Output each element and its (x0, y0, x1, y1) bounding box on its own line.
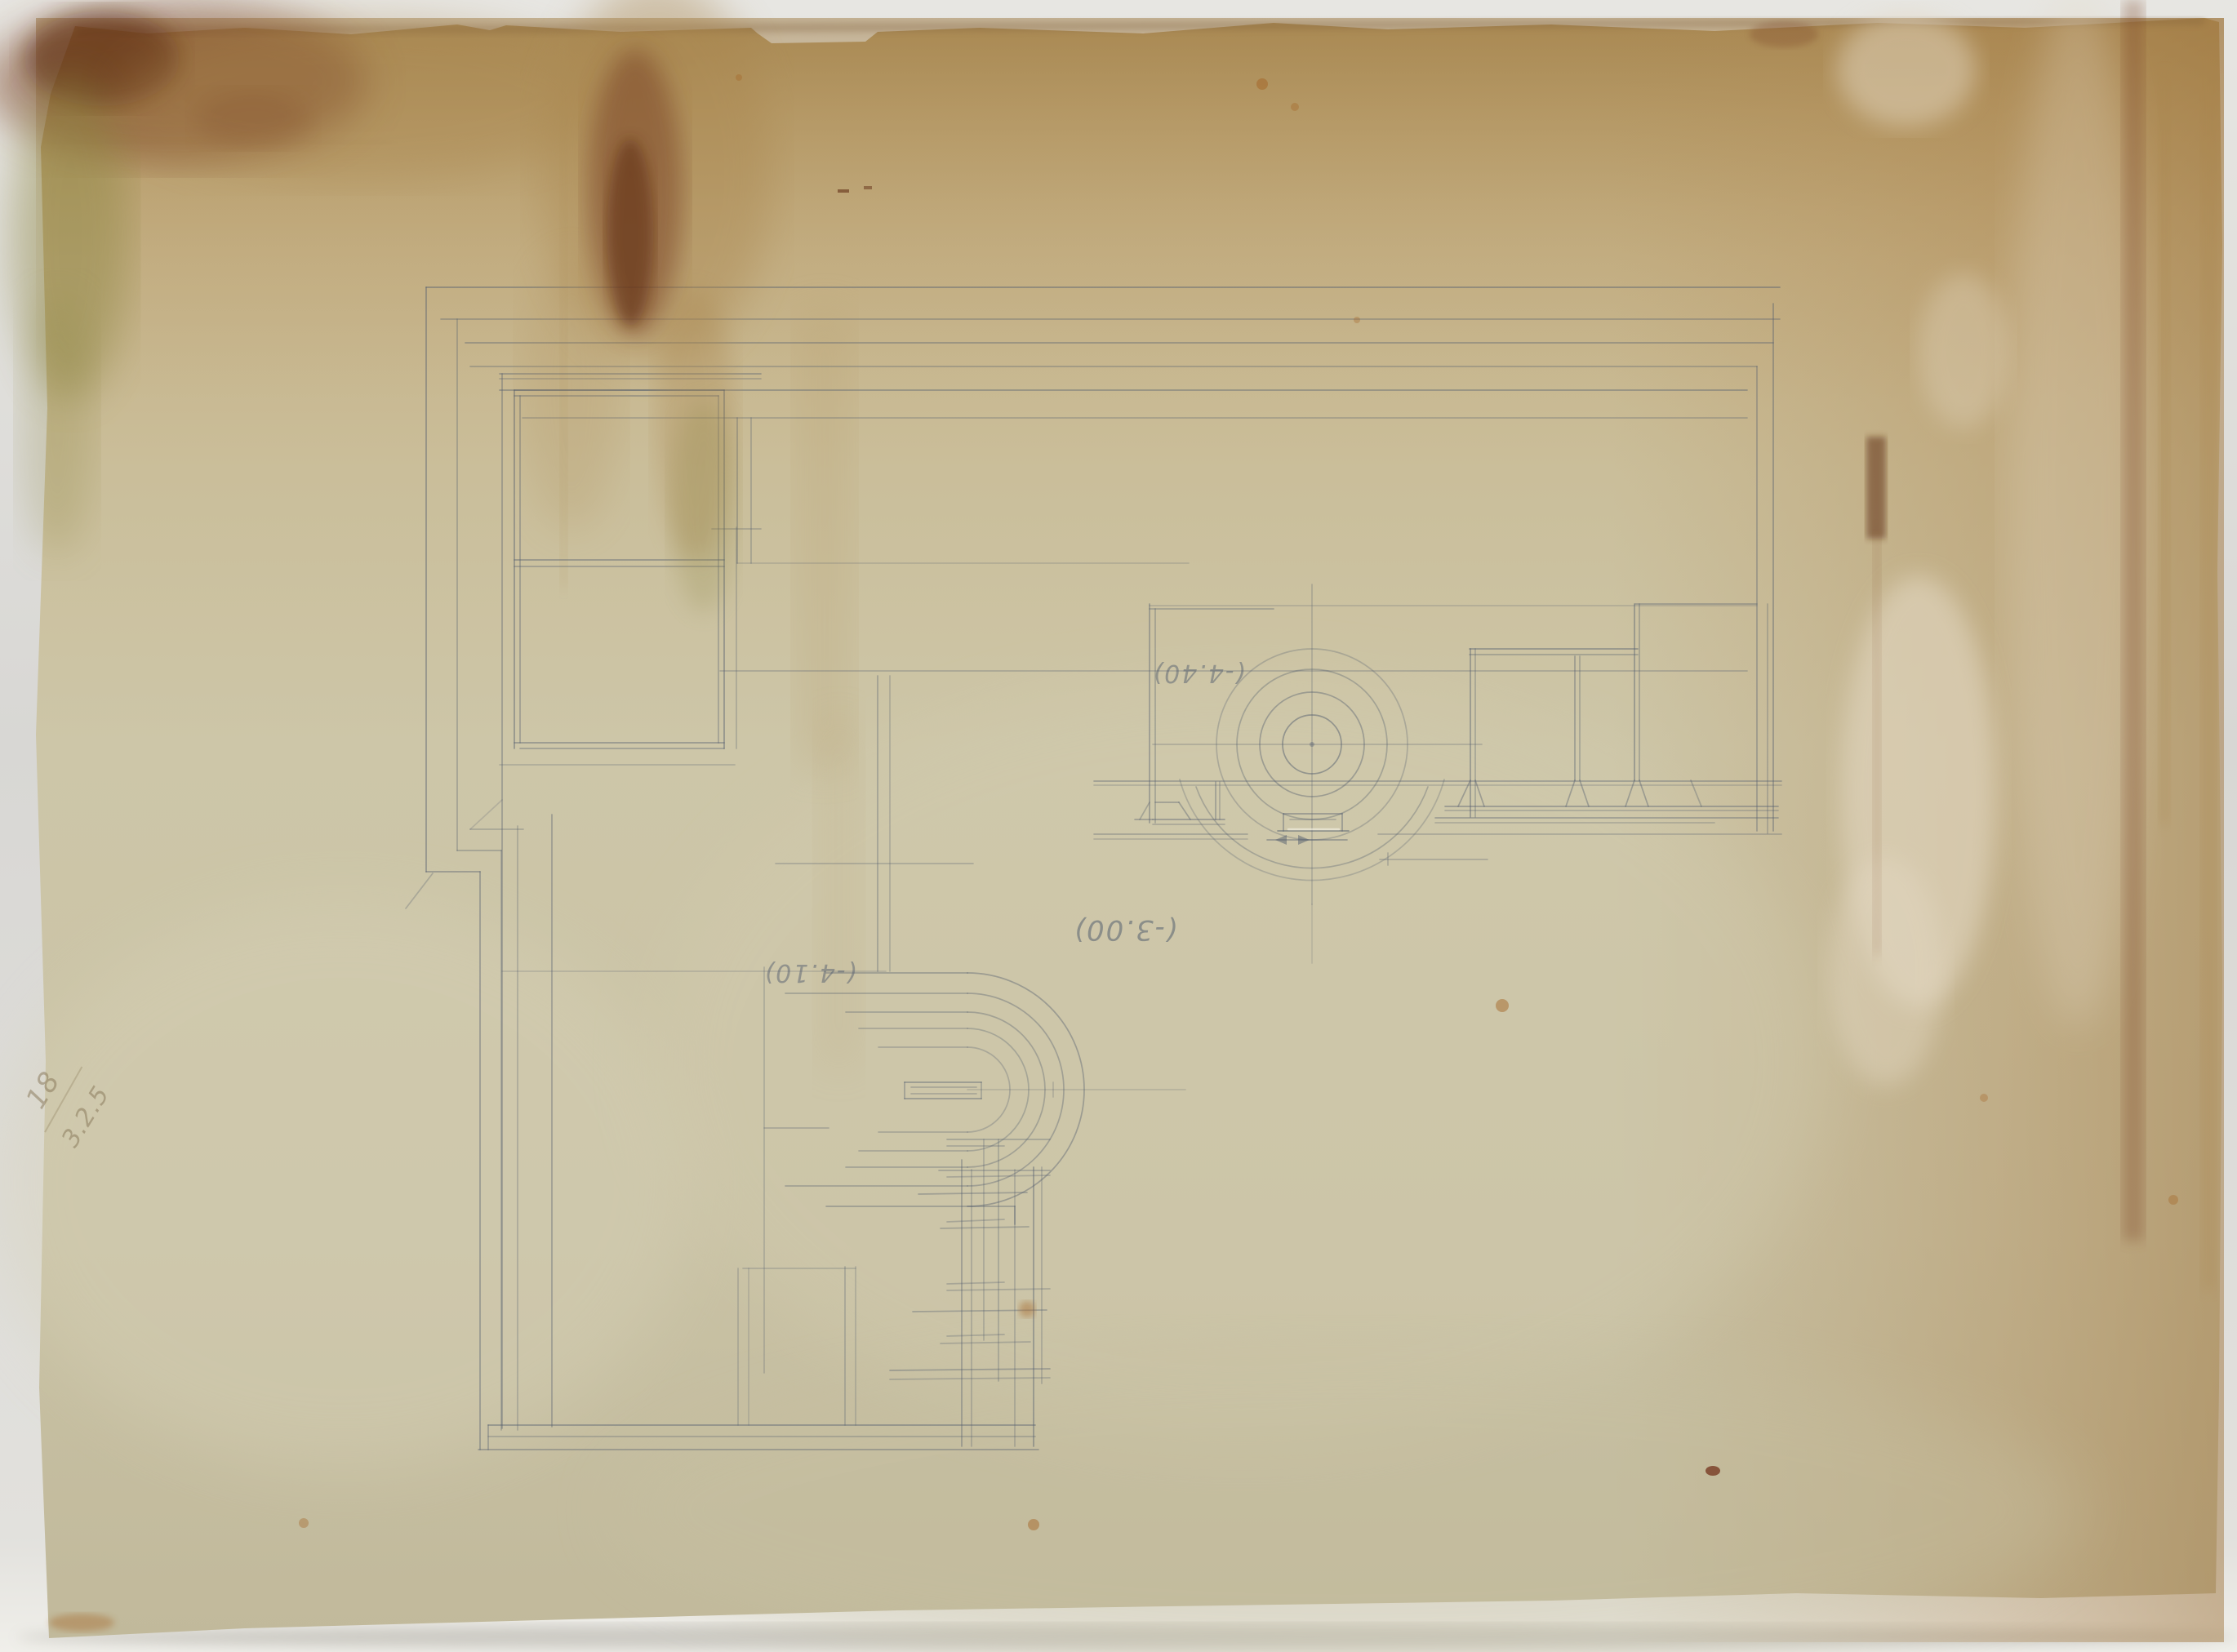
drawing-photo: (-4.40) (-3.00) (-4.10) 18 3.2.5 (0, 0, 2237, 1652)
level-mark-apse: (-3.00) (1073, 913, 1178, 946)
stain-maroon-blob (1866, 437, 1886, 539)
level-mark-rotunda: (-4.40) (1151, 659, 1245, 687)
pencil-dot (1310, 742, 1314, 747)
level-mark-ramp: (-4.10) (763, 958, 856, 987)
stain-upper-left-wash (114, 16, 604, 180)
photographed-drawing-sheet: (-4.40) (-3.00) (-4.10) 18 3.2.5 (0, 0, 2237, 1652)
